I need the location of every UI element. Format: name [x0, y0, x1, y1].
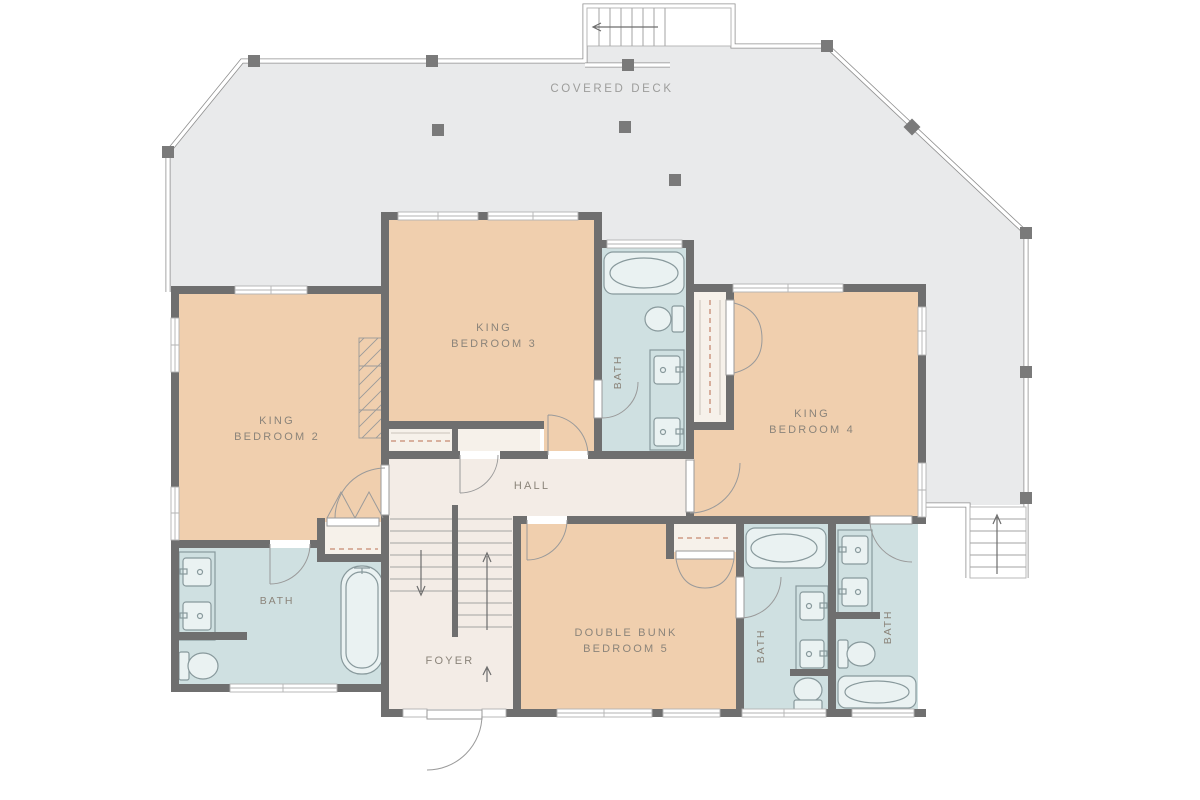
bedroom-4-label-line2: BEDROOM 4: [769, 424, 855, 436]
window: [398, 212, 478, 220]
toilet-bowl: [645, 307, 671, 331]
hall-closet-2-floor: [458, 429, 540, 451]
window: [742, 709, 826, 717]
bath-bedroom-3-label: BATH: [612, 355, 624, 389]
deck-label: COVERED DECK: [550, 83, 673, 95]
foyer-stairwell-floor: [389, 505, 513, 711]
toilet-tank: [794, 700, 822, 710]
window: [918, 463, 926, 517]
window: [918, 307, 926, 355]
window: [733, 284, 843, 292]
bath-bedroom-5-label: BATH: [755, 629, 767, 663]
hall-closet-1-floor: [389, 429, 452, 451]
floor-plan-page: COVERED DECK: [0, 0, 1200, 800]
bedroom-3-label-line2: BEDROOM 3: [451, 338, 537, 350]
bedroom-2-closet-floor: [325, 522, 381, 558]
bath-bedroom-4-label: BATH: [882, 610, 894, 644]
bedroom-5-label-line2: BEDROOM 5: [583, 643, 669, 655]
toilet-bowl: [847, 642, 875, 666]
bath-bedroom-2-label: BATH: [260, 595, 294, 607]
window: [607, 240, 682, 248]
window: [663, 709, 720, 717]
bedroom-3-label-line1: KING: [476, 322, 512, 334]
window: [171, 318, 179, 372]
deck-stairs-top: [587, 8, 731, 46]
window: [230, 684, 337, 692]
deck-stairs-right: [970, 507, 1026, 578]
hall-label: HALL: [514, 480, 550, 492]
floor-plan: COVERED DECK: [0, 0, 1200, 800]
foyer-label: FOYER: [426, 655, 475, 667]
entry-door: [403, 709, 506, 770]
toilet-bowl: [188, 653, 218, 679]
window: [488, 212, 578, 220]
window: [557, 709, 652, 717]
window: [171, 487, 179, 540]
bedroom-2-label-line2: BEDROOM 2: [234, 431, 320, 443]
toilet-bowl: [794, 678, 822, 702]
bedroom-5-label-line1: DOUBLE BUNK: [574, 627, 677, 639]
toilet-tank: [672, 306, 684, 332]
bedroom-2-label-line1: KING: [259, 415, 295, 427]
bedroom-3-floor: [389, 220, 594, 451]
bedroom-4-label-line1: KING: [794, 408, 830, 420]
window: [852, 709, 914, 717]
window: [235, 286, 307, 294]
